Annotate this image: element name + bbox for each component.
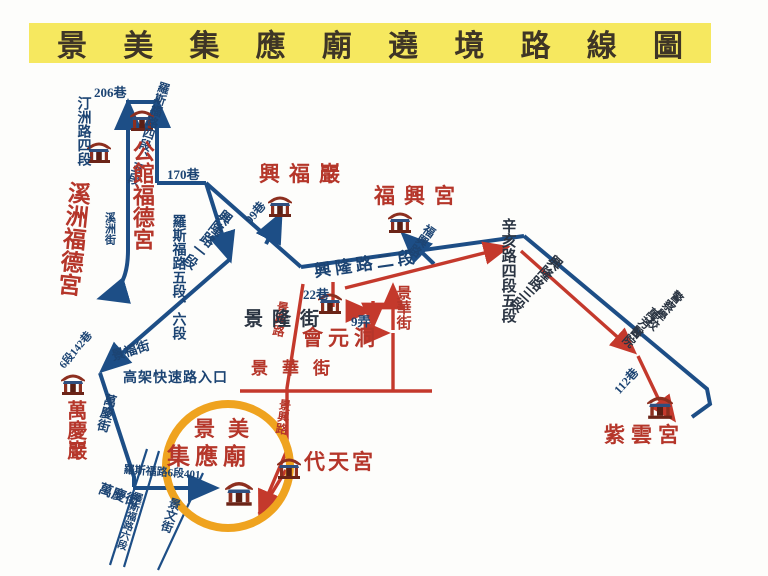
temple-label: 興福巖 [259,164,349,186]
road-label: 景華街 [394,285,410,330]
temple-label: 公館福德宮 [130,140,153,250]
temple-icon [276,456,302,485]
road-label: 170巷 [167,168,200,182]
road-label: 206巷 [94,86,127,100]
road-label: 羅斯福路五段、六段 [170,214,185,340]
temple-label: 會元洞 [302,328,380,350]
temple-icon [267,194,293,223]
temple-icon [60,372,86,401]
red-parallel-xinglong3 [521,251,632,350]
road-xizhou-st-curve [104,250,128,297]
road-label: 高架快速路入口 [123,372,228,387]
temple-label: 集應廟 [167,445,251,469]
temple-label: 福興宮 [374,186,464,208]
temple-icon [646,394,674,425]
road-label: 22巷 [303,288,329,302]
road-label: 溪洲街 [103,212,114,245]
temple-label: 紫雲宮 [604,425,685,447]
road-label: 汀洲路四段 [75,96,90,166]
temple-label: 景美 [194,419,262,441]
road-label: 景華街 [251,360,344,378]
route-map: 206巷汀洲路四段羅斯福路四段、五段170巷溪洲街羅斯福路五段、六段興隆路一段9… [0,0,768,576]
temple-label: 代天宮 [304,452,376,474]
temple-icon [387,210,413,239]
temple-label: 萬慶巖 [64,400,85,460]
temple-icon [224,479,254,512]
